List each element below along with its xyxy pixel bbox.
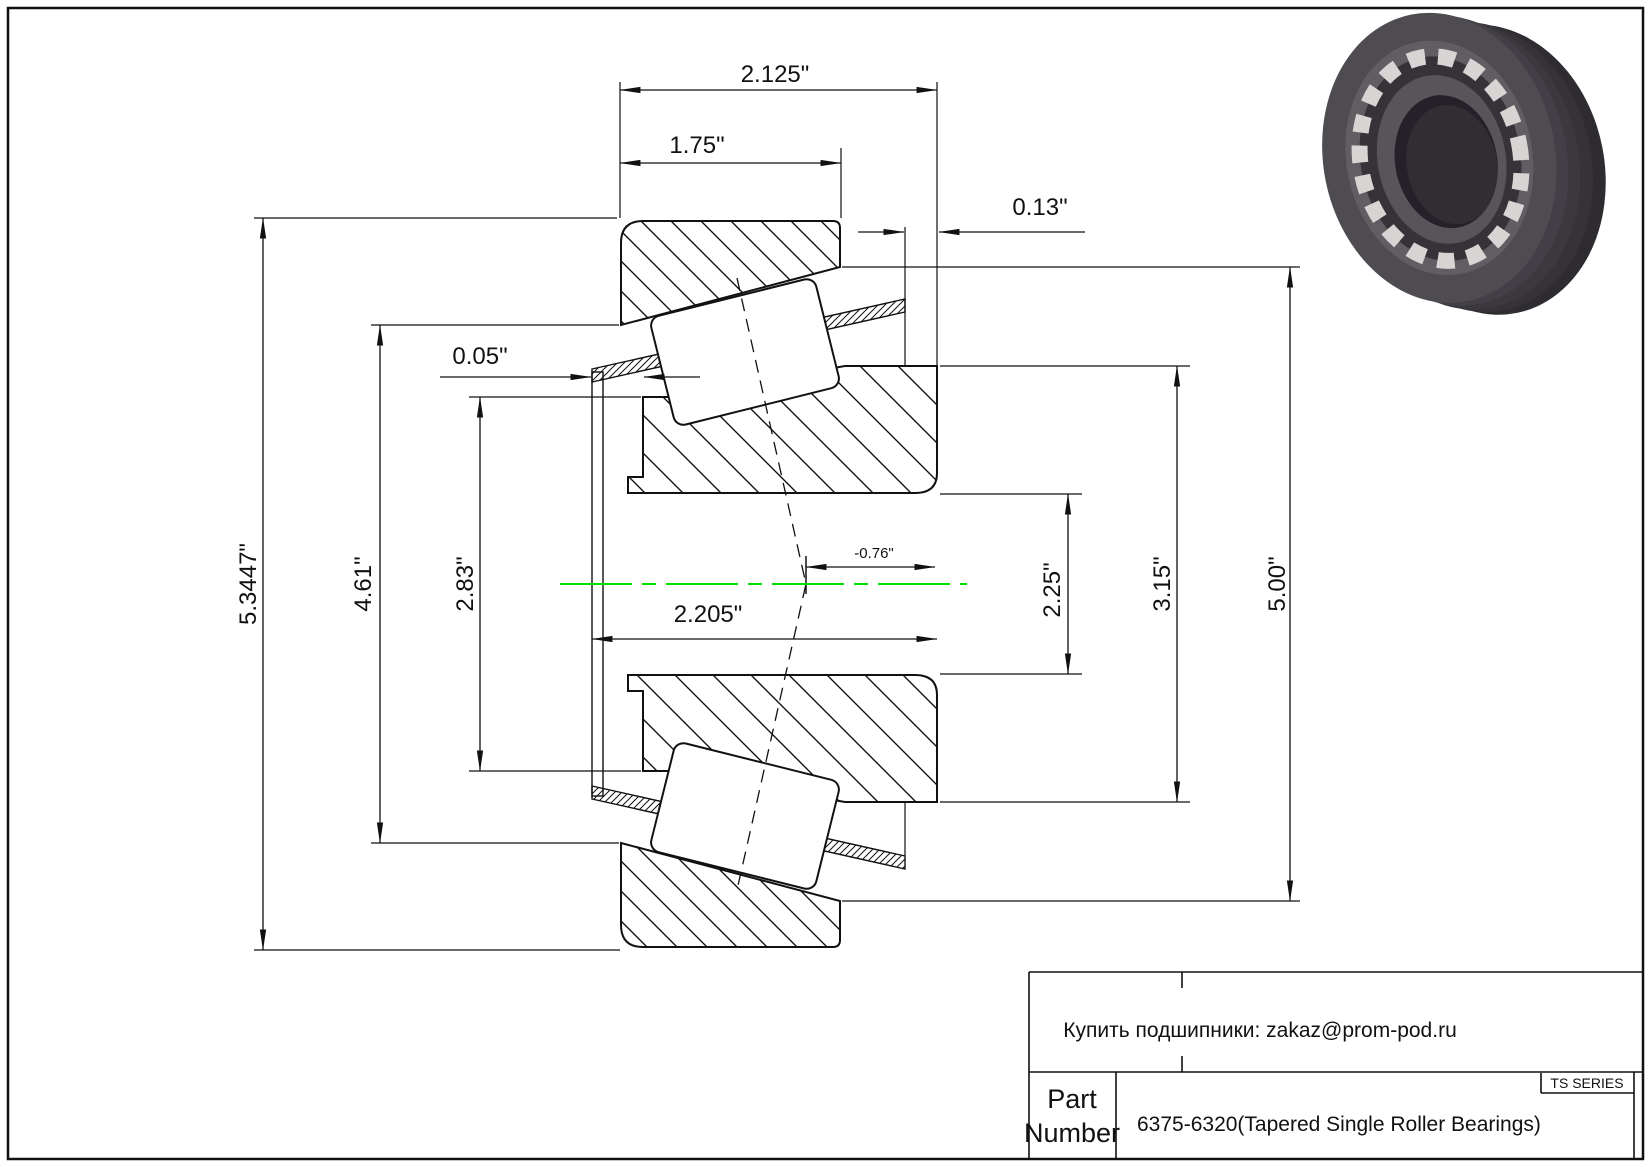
dim-53447-label: 5.3447" bbox=[235, 543, 262, 625]
dim-225-label: 2.25" bbox=[1039, 562, 1066, 617]
dim-013-label: 0.13" bbox=[1012, 194, 1067, 221]
dim-315-label: 3.15" bbox=[1149, 556, 1176, 611]
bearing-3d-render bbox=[1298, 0, 1631, 344]
part-label-line1: Part bbox=[1047, 1084, 1097, 1114]
contact-text: Купить подшипники: zakaz@prom-pod.ru bbox=[1063, 1019, 1457, 1042]
dim-461-label: 4.61" bbox=[350, 556, 377, 611]
part-number-text: 6375-6320(Tapered Single Roller Bearings… bbox=[1137, 1113, 1541, 1136]
dim-500-label: 5.00" bbox=[1264, 556, 1291, 611]
bearing-technical-drawing: 2.125" 1.75" 0.13" 0.05" 2.205" -0.76" 5… bbox=[0, 0, 1649, 1167]
series-badge: TS SERIES bbox=[1550, 1075, 1623, 1091]
dim-2205-label: 2.205" bbox=[674, 601, 743, 628]
part-label-line2: Number bbox=[1024, 1118, 1120, 1148]
dim-neg076-label: -0.76" bbox=[854, 545, 894, 562]
dim-005-label: 0.05" bbox=[452, 343, 507, 370]
dim-283-label: 2.83" bbox=[452, 556, 479, 611]
drawing-page: 2.125" 1.75" 0.13" 0.05" 2.205" -0.76" 5… bbox=[0, 0, 1649, 1167]
dim-width-175-label: 1.75" bbox=[669, 132, 724, 159]
dim-width-2125-label: 2.125" bbox=[741, 61, 810, 88]
